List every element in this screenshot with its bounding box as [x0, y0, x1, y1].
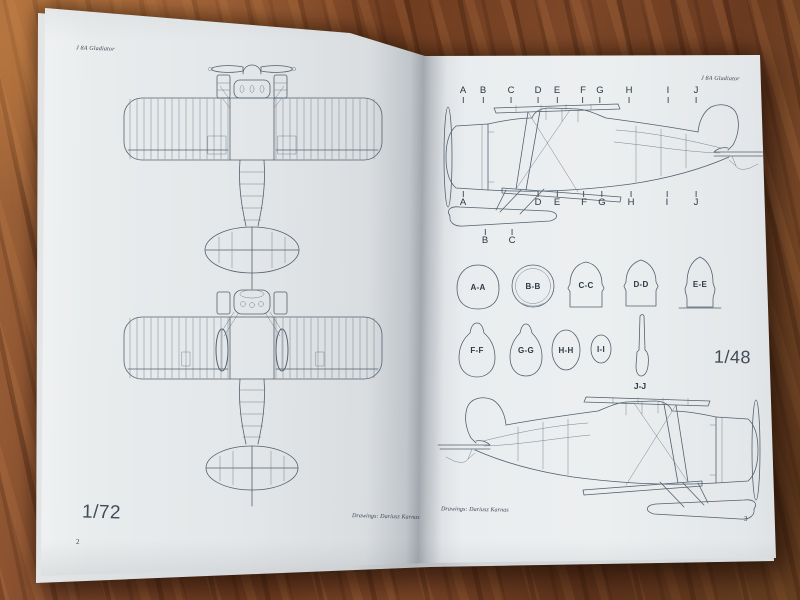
section-letter: D: [535, 86, 542, 96]
cross-section-A-A: A-A: [454, 262, 502, 312]
section-letter: F: [580, 86, 586, 96]
cross-section-label: C-C: [564, 259, 608, 311]
cross-section-label: B-B: [510, 262, 556, 310]
section-marker: H: [628, 191, 635, 208]
cross-section-G-G: G-G: [506, 322, 546, 378]
section-letter: B: [482, 236, 488, 246]
cross-section-H-H: H-H: [549, 327, 583, 373]
section-letter: D: [535, 198, 542, 208]
cross-section-label: I-I: [588, 332, 614, 366]
section-marker: G: [598, 191, 605, 208]
cross-section-label: H-H: [549, 327, 583, 373]
photo-of-open-book: { "left_page": { "header": "J 8A Gladiat…: [0, 0, 800, 600]
aircraft-side-view-drawing-left: [436, 100, 768, 238]
cross-section-E-E: E-E: [677, 255, 723, 313]
section-letter: G: [596, 86, 603, 96]
section-marker: A: [460, 191, 466, 208]
left-page-header: J 8A Gladiator: [76, 45, 115, 52]
cross-section-C-C: C-C: [564, 259, 608, 311]
section-letter: B: [480, 86, 486, 96]
left-page-number: 2: [76, 538, 80, 546]
cross-section-B-B: B-B: [510, 262, 556, 310]
section-letter: G: [598, 198, 605, 208]
cross-section-I-I: I-I: [588, 332, 614, 366]
section-marker: E: [554, 191, 560, 208]
aircraft-top-view-drawing: [122, 56, 384, 291]
section-marker: I: [666, 191, 669, 208]
section-letter: I: [666, 198, 669, 208]
cross-section-label: F-F: [454, 321, 500, 379]
section-letter: H: [626, 86, 633, 96]
section-letter: E: [554, 86, 560, 96]
cross-section-label: D-D: [620, 257, 662, 311]
cross-section-label: E-E: [677, 255, 723, 313]
propeller-blade-section-drawing: [633, 314, 649, 378]
right-page-credit: Drawings: Dariusz Karnas: [441, 506, 509, 513]
right-scale-label: 1/48: [714, 347, 751, 369]
left-page-credit: Drawings: Dariusz Karnas: [352, 513, 420, 521]
open-book-pages: J 8A Gladiator: [0, 0, 800, 600]
propeller-section-label: J-J: [634, 381, 646, 391]
section-marker: J: [694, 191, 699, 208]
section-letter: C: [508, 86, 515, 96]
section-letter: A: [460, 198, 466, 208]
section-letter: I: [667, 86, 670, 96]
book: J 8A Gladiator: [0, 0, 800, 600]
left-scale-label: 1/72: [82, 501, 122, 524]
cross-section-F-F: F-F: [454, 321, 500, 379]
aircraft-bottom-view-drawing: [122, 286, 384, 508]
cross-section-label: A-A: [454, 262, 502, 312]
section-letter: E: [554, 198, 560, 208]
section-letter: F: [581, 198, 587, 208]
section-letter: A: [460, 86, 466, 96]
right-page-header: J 8A Gladiator: [701, 76, 740, 83]
section-letter: J: [694, 86, 699, 96]
right-page-number: 3: [744, 515, 748, 523]
section-marker: D: [535, 191, 542, 208]
cross-section-label: G-G: [506, 322, 546, 378]
section-letter: C: [509, 236, 516, 246]
section-marker: F: [581, 191, 587, 208]
section-marker: C: [509, 229, 516, 246]
section-letter: J: [694, 198, 699, 208]
section-letter: H: [628, 198, 635, 208]
section-marker: B: [482, 229, 488, 246]
cross-section-D-D: D-D: [620, 257, 662, 311]
